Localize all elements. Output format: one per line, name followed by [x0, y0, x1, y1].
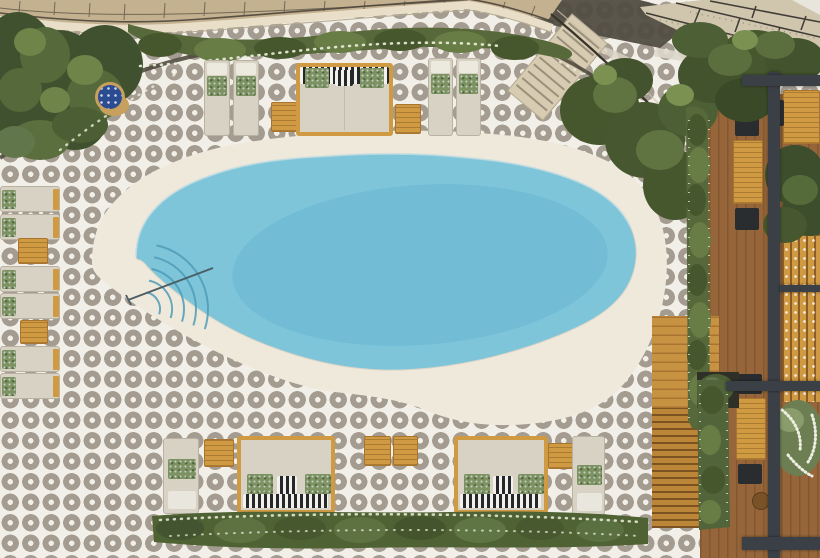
pool-deck-scene: [0, 0, 820, 558]
pergola-beam-horizontal: [742, 75, 820, 86]
hedge-bottom: [152, 511, 648, 548]
hedge-right-lower: [697, 380, 730, 530]
pergola-beam-horizontal: [742, 537, 820, 550]
pergola-beam-vertical: [768, 72, 780, 558]
pergola-beam-horizontal: [726, 381, 820, 391]
pergola-beam-horizontal: [780, 285, 820, 292]
foliage-over-layer: [0, 0, 820, 558]
